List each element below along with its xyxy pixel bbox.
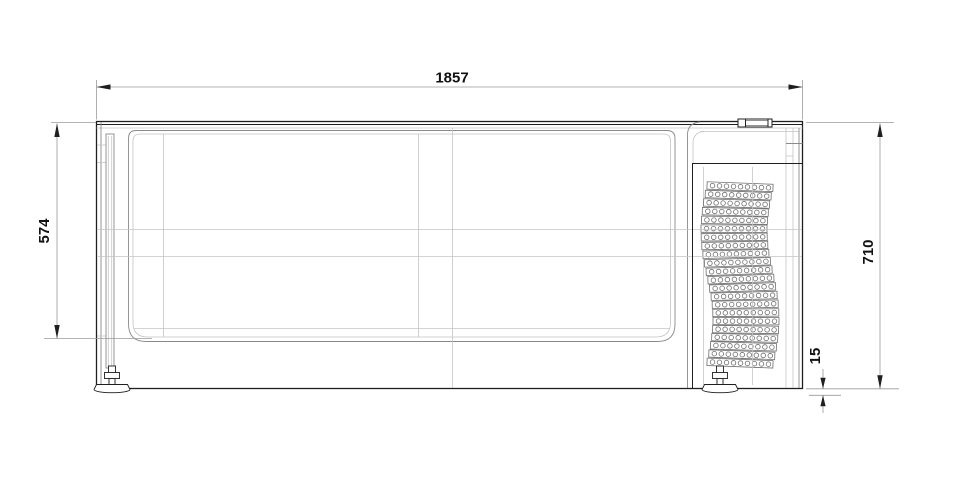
grille-row [713, 309, 779, 317]
arrowhead-down-icon [877, 375, 882, 389]
grille-row [701, 225, 767, 233]
grille-strip [711, 291, 777, 300]
grille-row [701, 233, 767, 241]
unit-body [97, 122, 803, 389]
foot-screw [109, 379, 115, 385]
grille-strip [703, 199, 769, 208]
drawing-canvas: 1857 574 710 15 [0, 0, 980, 494]
foot-screw [717, 379, 723, 385]
grille-row [703, 249, 769, 258]
arrowhead-right-icon [789, 84, 803, 89]
grille-strip [702, 207, 768, 216]
grille-row [712, 300, 778, 309]
dimension-foot-clearance-label: 15 [807, 348, 824, 365]
grille-strip [710, 342, 776, 351]
left-leg-column [106, 134, 114, 368]
dimension-foot-clearance: 15 [807, 348, 841, 413]
foot-nut [105, 373, 120, 379]
foot-base-disc [94, 385, 130, 393]
grille-row [701, 216, 767, 224]
arrowhead-down-icon [820, 378, 825, 389]
arrowhead-up-icon [820, 395, 825, 406]
grille-row [710, 342, 776, 351]
foot-nut [713, 373, 728, 379]
top-switch-cover [738, 119, 772, 127]
grille-row [703, 199, 769, 208]
grille-row [713, 317, 779, 325]
arrowhead-left-icon [97, 84, 111, 89]
grille-row [711, 291, 777, 300]
dimension-front-height-label: 574 [36, 218, 53, 244]
dimension-overall-width: 1857 [97, 70, 803, 120]
foot-stem [109, 366, 116, 373]
grille-strip [712, 333, 778, 342]
grille-row [713, 325, 779, 333]
arrowhead-up-icon [54, 124, 59, 138]
dimension-overall-height-label: 710 [860, 239, 877, 264]
grille-strip [703, 249, 769, 258]
body-outline [97, 122, 803, 389]
grille-row [702, 241, 768, 250]
dimension-width-label: 1857 [435, 70, 468, 87]
foot-base-disc [702, 385, 738, 393]
grille-row [702, 207, 768, 216]
foot-stem [717, 366, 724, 373]
arrowhead-down-icon [54, 325, 59, 339]
arrowhead-up-icon [877, 124, 882, 138]
grille-row [712, 333, 778, 342]
technical-drawing: 1857 574 710 15 [0, 0, 980, 494]
